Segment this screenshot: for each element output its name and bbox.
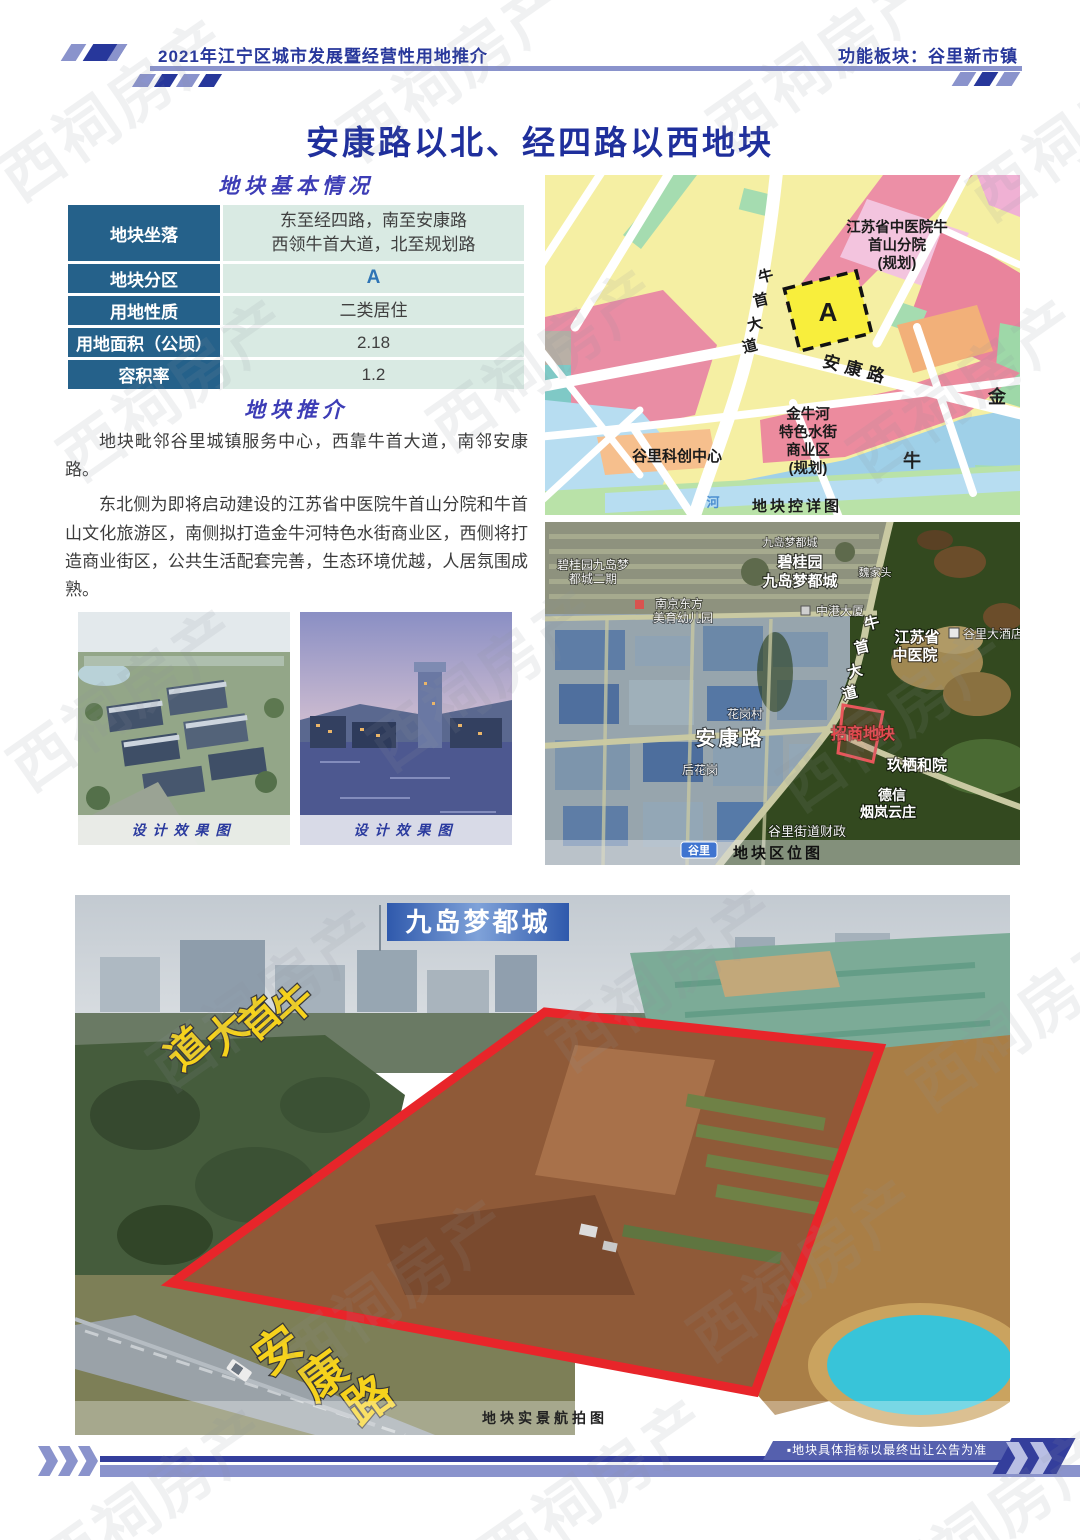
zoning-map-caption: 地块控详图 <box>752 497 842 515</box>
promo-paragraph: 东北侧为即将启动建设的江苏省中医院牛首山分院和牛首山文化旅游区，南侧拟打造金牛河… <box>65 491 528 604</box>
huagang-label: 花岗村 <box>727 706 763 721</box>
river-label: 河 <box>706 495 719 510</box>
caizheng-label: 谷里街道财政 <box>768 824 846 839</box>
hospital-label: 首山分院 <box>868 236 926 254</box>
zoning-map: A 江苏省中医院牛 首山分院 (规划) 牛 首 大 道 安康路 金牛河 特色水街… <box>545 175 1020 515</box>
promo-paragraph: 地块毗邻谷里城镇服务中心，西靠牛首大道，南邻安康路。 <box>65 428 528 484</box>
niu-label: 牛 <box>903 450 921 471</box>
kechuang-label: 谷里科创中心 <box>632 447 722 465</box>
row-value: 东至经四路，南至安康路 西领牛首大道，北至规划路 <box>223 205 524 261</box>
bgy-label: 碧桂园 <box>776 553 822 571</box>
building-icon <box>801 606 810 615</box>
render-caption: 设计效果图 <box>300 815 512 845</box>
footer-note: ▪地块具体指标以最终出让公告为准 <box>768 1441 1006 1460</box>
hotel-icon <box>949 628 959 638</box>
ankang-road-label: 安康路 <box>696 726 765 750</box>
jiudao-small-label: 九岛梦都城 <box>763 535 818 549</box>
design-render-waterfront: 设计效果图 <box>300 612 512 845</box>
table-row: 容积率 1.2 <box>68 360 524 389</box>
row-value: 2.18 <box>223 328 524 357</box>
header-deco-right-3 <box>996 72 1021 86</box>
dexin-label: 烟岚云庄 <box>860 804 916 820</box>
page-title: 安康路以北、经四路以西地块 <box>0 116 1080 164</box>
satellite-map-caption: 地块区位图 <box>733 844 823 862</box>
promo-text: 地块毗邻谷里城镇服务中心，西靠牛首大道，南邻安康路。 东北侧为即将启动建设的江苏… <box>65 428 528 611</box>
dexin-label: 德信 <box>878 787 906 803</box>
header-deco-sub-3 <box>176 74 200 87</box>
section-title: 功能板块：谷里新市镇 <box>838 42 1018 67</box>
footer-bar-light <box>100 1465 1080 1477</box>
hospital-label: (规划) <box>878 254 917 272</box>
header-deco-left <box>61 44 87 61</box>
footer-chevron-left <box>58 1446 78 1476</box>
school-icon <box>635 600 644 609</box>
header-deco-sub-1 <box>132 74 156 87</box>
table-row: 用地性质 二类居住 <box>68 296 524 325</box>
jiuqi-label: 玖栖和院 <box>887 756 947 774</box>
row-label: 用地面积（公顷） <box>68 328 220 357</box>
row-value: 二类居住 <box>223 296 524 325</box>
aerial-photo: 九岛梦都城 牛 首 大 道 安 康 路 地块实景航拍图 <box>75 895 1010 1435</box>
bgy-label: 九岛梦都城 <box>761 572 837 590</box>
row-label: 地块分区 <box>68 264 220 293</box>
render-waterfront-art <box>300 612 512 845</box>
event-title: 2021年江宁区城市发展暨经营性用地推介 <box>158 42 488 67</box>
jinniu-label: 金牛河 <box>785 405 830 423</box>
investment-parcel-label: 招商地块 <box>831 724 896 743</box>
zhonggang-label: 中港大厦 <box>816 603 864 618</box>
pond <box>827 1315 1010 1415</box>
houhuagang-label: 后花岗 <box>682 762 718 777</box>
land-promotion-page: 2021年江宁区城市发展暨经营性用地推介 功能板块：谷里新市镇 安康路以北、经四… <box>0 0 1080 1540</box>
hospital-label: 江苏省 <box>894 628 939 646</box>
ribbon-label: 九岛梦都城 <box>404 907 550 937</box>
design-render-aerial: 设计效果图 <box>78 612 290 845</box>
jinniu-label: 商业区 <box>786 441 830 459</box>
header-deco-right-1 <box>952 72 977 86</box>
parcel-a-label: A <box>819 297 838 327</box>
aerial-photo-caption: 地块实景航拍图 <box>482 1410 608 1426</box>
header-deco-right-2 <box>974 72 999 86</box>
satellite-map: 九岛梦都城 碧桂园 九岛梦都城 魏家头 碧桂园九岛梦 都城二期 南京东方 美育幼… <box>545 522 1020 865</box>
row-label: 地块坐落 <box>68 205 220 261</box>
jinniu-label: 特色水街 <box>779 423 837 441</box>
hotel-label: 谷里大酒店 <box>963 627 1020 641</box>
render-aerial-art <box>78 612 290 845</box>
promo-heading: 地块推介 <box>65 394 527 424</box>
basic-info-heading: 地块基本情况 <box>65 170 527 200</box>
bgy2-label: 都城二期 <box>569 572 617 586</box>
hospital-label: 江苏省中医院牛 <box>846 218 948 236</box>
jin-label: 金 <box>987 386 1007 407</box>
render-caption: 设计效果图 <box>78 815 290 845</box>
basic-info-table: 地块坐落 东至经四路，南至安康路 西领牛首大道，北至规划路 地块分区 A 用地性… <box>65 202 527 392</box>
jinniu-label: (规划) <box>789 459 828 477</box>
bgy2-label: 碧桂园九岛梦 <box>557 557 629 572</box>
row-label: 用地性质 <box>68 296 220 325</box>
road-sign-label: 谷里 <box>688 843 710 857</box>
row-label: 容积率 <box>68 360 220 389</box>
footer-note-bar: ▪地块具体指标以最终出让公告为准 <box>763 1441 1011 1460</box>
table-row: 地块分区 A <box>68 264 524 293</box>
row-value-zone: A <box>223 264 524 293</box>
table-row: 用地面积（公顷） 2.18 <box>68 328 524 357</box>
header-rule <box>150 66 1022 71</box>
kindergarten-label: 南京东方 <box>655 596 703 611</box>
header-deco-sub-2 <box>154 74 178 87</box>
hospital-label: 中医院 <box>892 646 937 664</box>
row-value: 1.2 <box>223 360 524 389</box>
weijiatou-label: 魏家头 <box>859 565 892 579</box>
footer-chevron-left <box>78 1446 98 1476</box>
header-deco-sub-4 <box>198 74 222 87</box>
footer-chevron-left <box>38 1446 58 1476</box>
kindergarten-label: 美育幼儿园 <box>653 610 713 625</box>
table-row: 地块坐落 东至经四路，南至安康路 西领牛首大道，北至规划路 <box>68 205 524 261</box>
